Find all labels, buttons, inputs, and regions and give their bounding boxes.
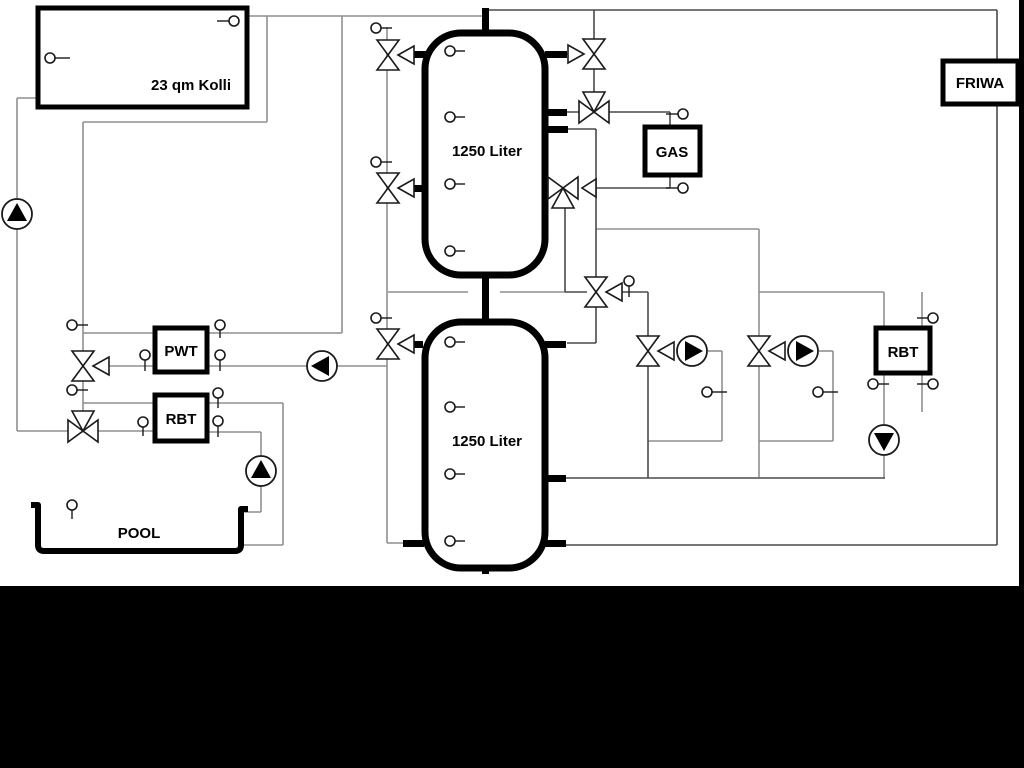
valve-triangle: [377, 55, 399, 70]
temperature-sensor-icon: [371, 23, 392, 33]
collector-label: 23 qm Kolli: [151, 77, 231, 94]
schematic-canvas: 23 qm Kolli 1250 Liter 1250 Liter PWT RB…: [0, 0, 1024, 586]
heating-pump-1-icon: [677, 336, 707, 366]
rbt-right-label: RBT: [888, 344, 919, 361]
valve-triangle: [398, 179, 414, 197]
temperature-sensor-icon: [213, 388, 223, 408]
valve-triangle: [637, 336, 659, 351]
temperature-sensor-icon: [371, 157, 392, 167]
valve-triangle: [72, 351, 94, 366]
valve-triangle: [658, 342, 674, 360]
valve-triangle: [377, 329, 399, 344]
valve-distribution-icon: [585, 277, 622, 307]
valve-triangle: [93, 357, 109, 375]
valve-triangle: [585, 292, 607, 307]
right-edge-band: [1019, 0, 1024, 586]
valve-tank-top-left-lower-icon: [377, 173, 414, 203]
bottom-black-band: [0, 586, 1024, 768]
valve-triangle: [398, 46, 414, 64]
valve-triangle: [377, 344, 399, 359]
pwt-label: PWT: [164, 343, 197, 360]
valve-triangle: [377, 173, 399, 188]
temperature-sensor-icon: [215, 320, 225, 338]
valve-triangle: [582, 179, 596, 197]
temperature-sensor-icon: [813, 387, 838, 397]
pool-pump-icon: [246, 456, 276, 486]
temperature-sensor-icon: [140, 350, 150, 371]
flow-arrow-icon: [582, 179, 596, 197]
valve-triangle: [637, 351, 659, 366]
temperature-sensor-icon: [67, 385, 88, 395]
temperature-sensor-icon: [624, 276, 634, 297]
valve-heating-circuit-1-icon: [637, 336, 674, 366]
temperature-sensor-icon: [213, 416, 223, 437]
temperature-sensor-icon: [67, 500, 77, 519]
rbt-right-pump-icon: [869, 425, 899, 455]
temperature-sensor-icon: [917, 379, 938, 389]
valve-triangle: [583, 39, 605, 54]
valve-triangle: [72, 366, 94, 381]
valve-triangle: [583, 54, 605, 69]
tank-top-label: 1250 Liter: [452, 143, 522, 160]
valve-triangle: [748, 351, 770, 366]
valve-triangle: [606, 283, 622, 301]
temperature-sensor-icon: [138, 417, 148, 436]
rbt-left-label: RBT: [166, 411, 197, 428]
schematic-page: 23 qm Kolli 1250 Liter 1250 Liter PWT RB…: [0, 0, 1024, 768]
temperature-sensor-icon: [917, 313, 938, 323]
temperature-sensor-icon: [868, 379, 889, 389]
temperature-sensor-icon: [67, 320, 88, 330]
valve-triangle: [377, 188, 399, 203]
valve-heating-circuit-2-icon: [748, 336, 785, 366]
diagram-area: 23 qm Kolli 1250 Liter 1250 Liter PWT RB…: [0, 0, 1024, 586]
valve-pool-icon: [68, 411, 98, 442]
valve-triangle: [568, 45, 584, 63]
friwa-label: FRIWA: [956, 75, 1004, 92]
tank-bottom-label: 1250 Liter: [452, 433, 522, 450]
valve-gas-return-icon: [548, 177, 578, 208]
temperature-sensor-icon: [215, 350, 225, 371]
pool-label: POOL: [118, 525, 161, 542]
pwt-pump-icon: [307, 351, 337, 381]
solar-pump-icon: [2, 199, 32, 229]
valve-triangle: [377, 40, 399, 55]
temperature-sensor-icon: [371, 313, 392, 323]
valve-tank-top-right-1-icon: [568, 39, 605, 69]
temperature-sensor-icon: [702, 387, 727, 397]
gas-label: GAS: [656, 144, 689, 161]
valve-tank-top-left-upper-icon: [377, 40, 414, 70]
valve-triangle: [585, 277, 607, 292]
heating-pump-2-icon: [788, 336, 818, 366]
valve-pwt-icon: [72, 351, 109, 381]
valve-triangle: [769, 342, 785, 360]
valve-tank-bottom-left-icon: [377, 329, 414, 359]
valve-gas-flow-icon: [579, 92, 609, 123]
valve-triangle: [398, 335, 414, 353]
valve-triangle: [748, 336, 770, 351]
